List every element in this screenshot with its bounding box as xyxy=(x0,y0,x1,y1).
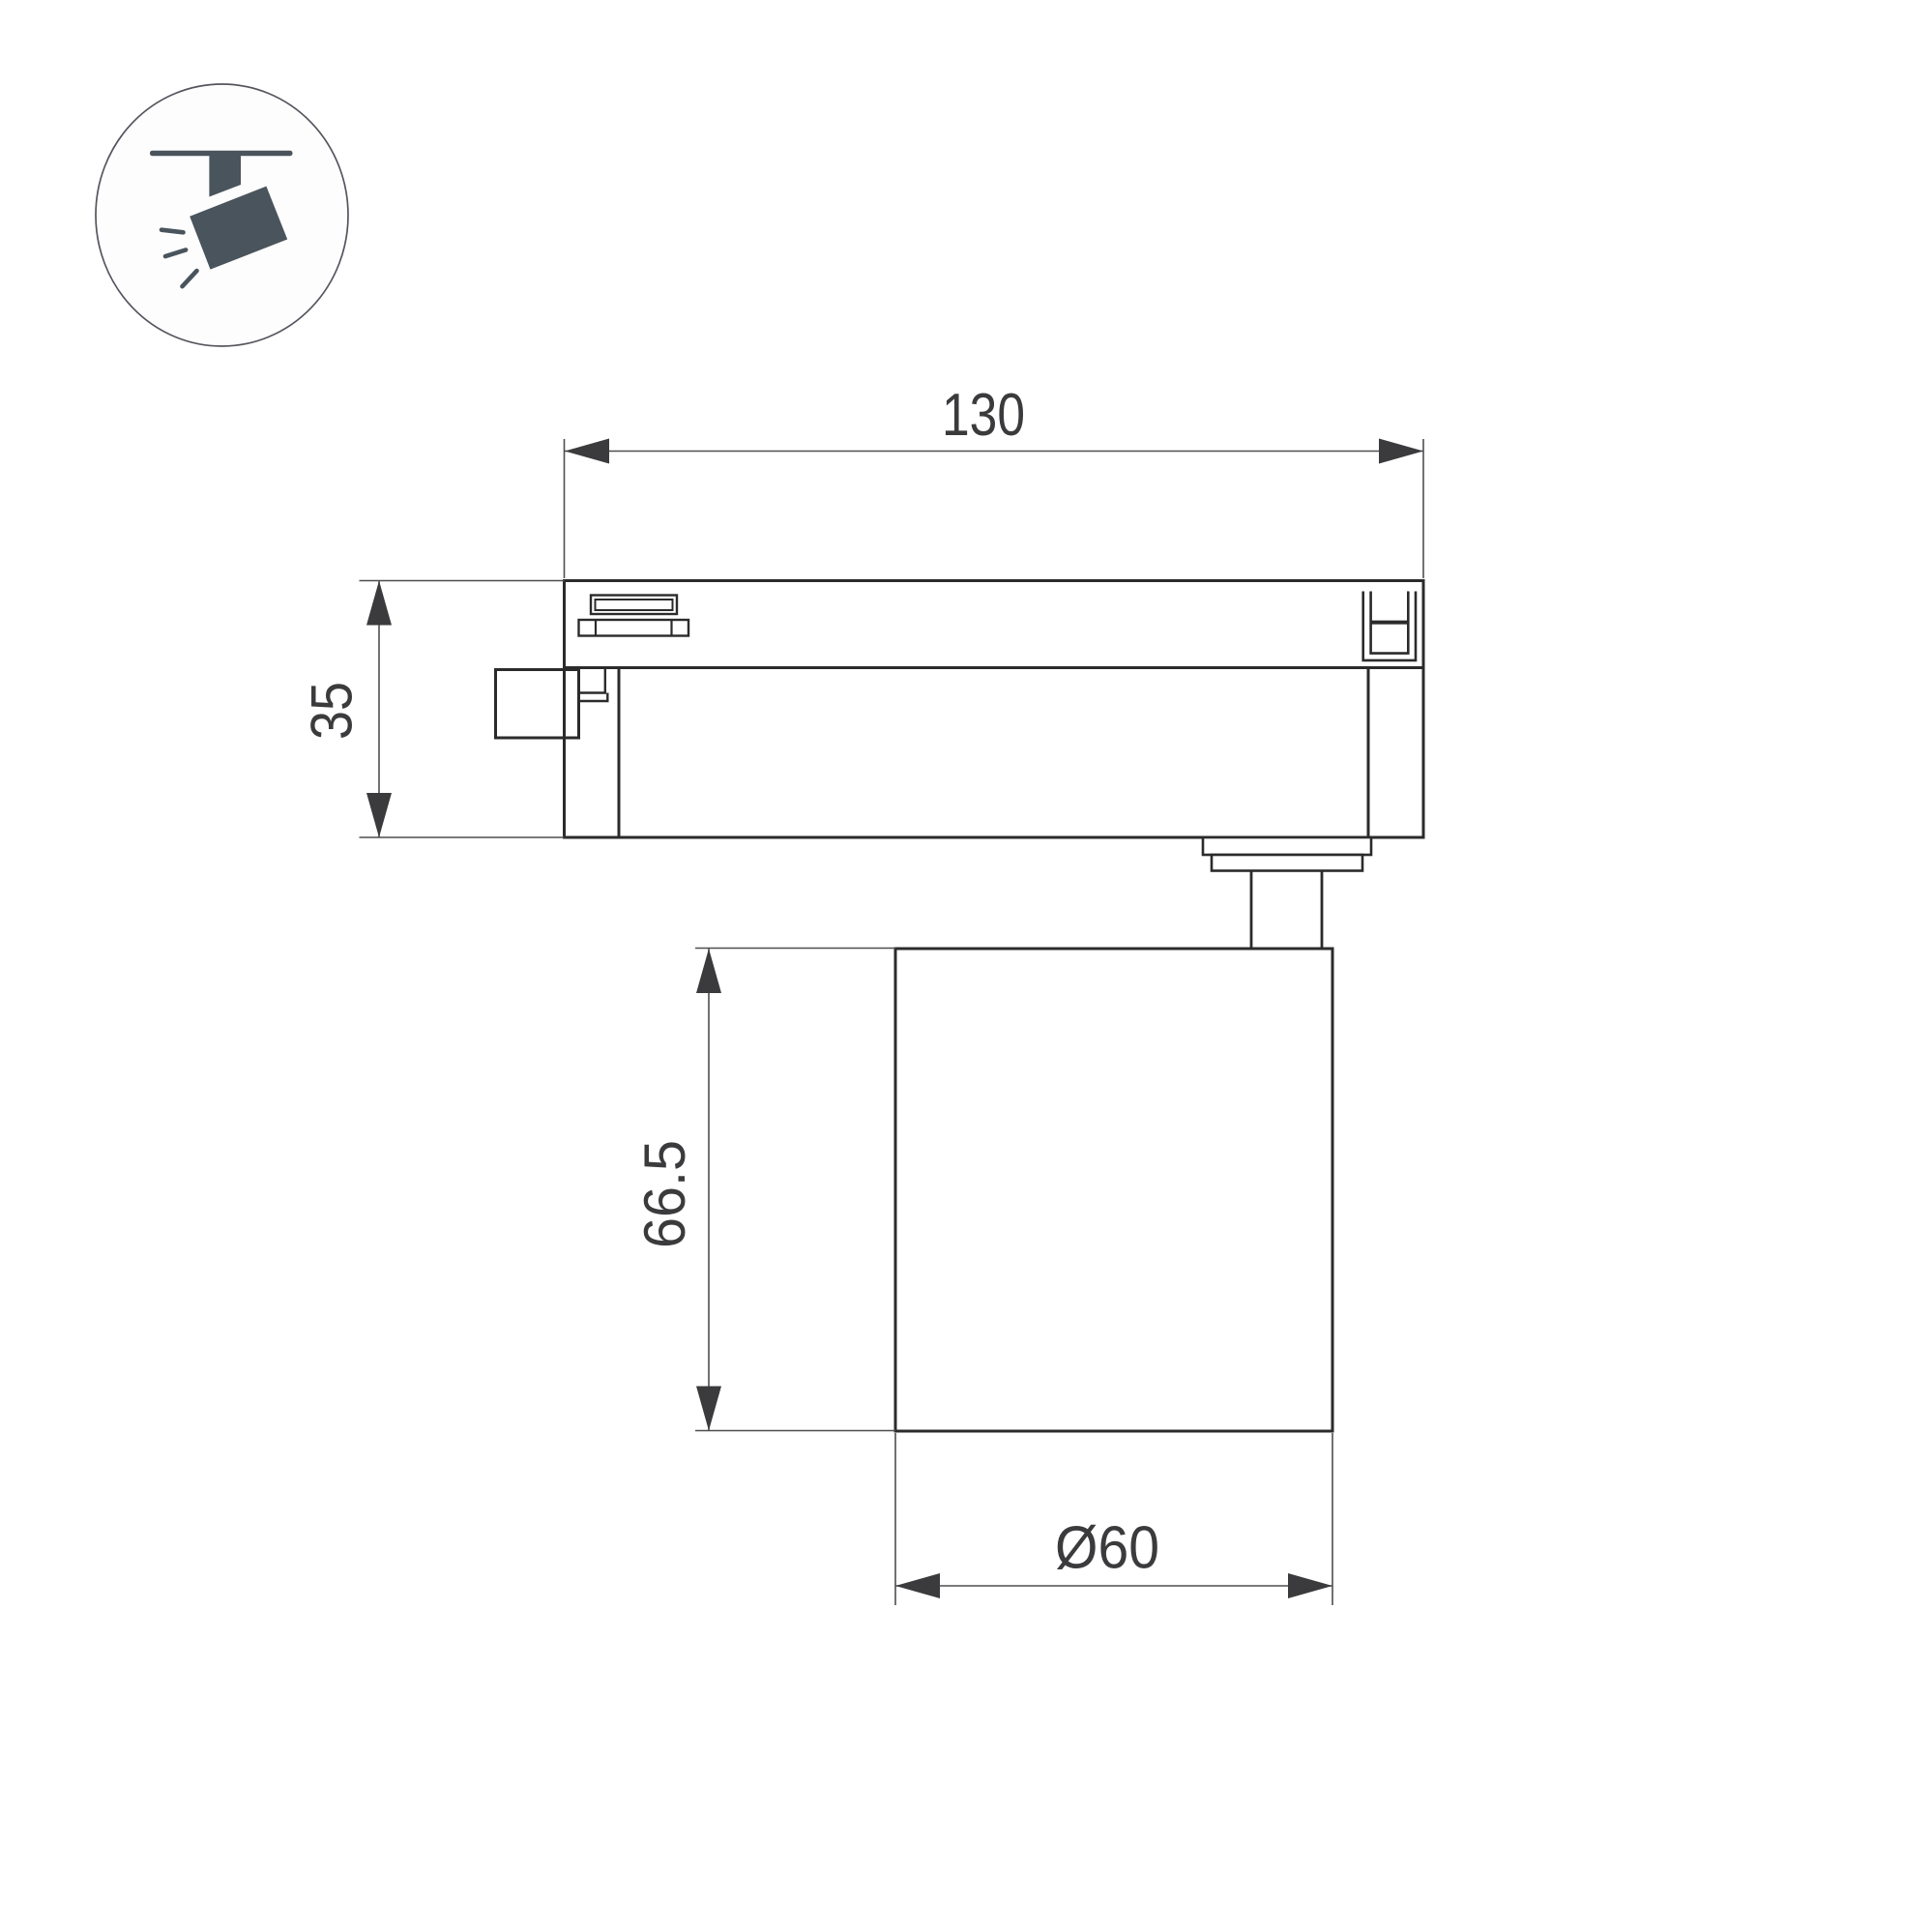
svg-text:Ø60: Ø60 xyxy=(1055,1515,1159,1582)
svg-text:66.5: 66.5 xyxy=(632,1140,697,1248)
svg-text:35: 35 xyxy=(300,682,365,740)
svg-text:130: 130 xyxy=(942,382,1025,449)
